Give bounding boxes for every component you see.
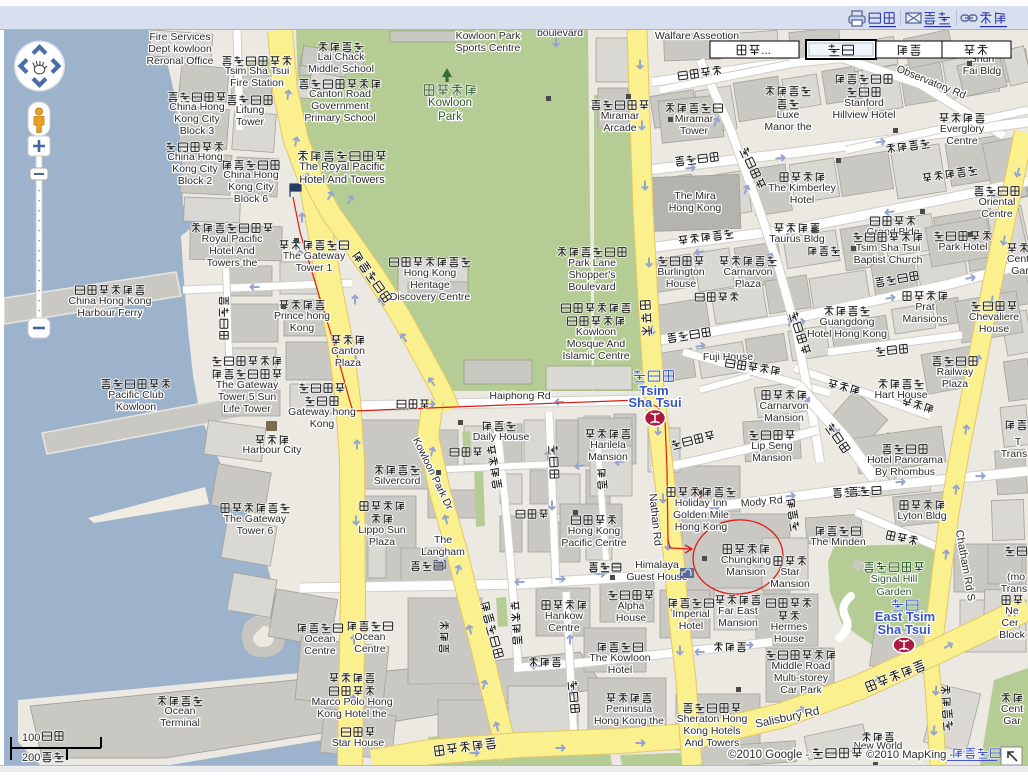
svg-text:Daily House: Daily House xyxy=(473,431,530,443)
svg-text:Guest House: Guest House xyxy=(626,571,687,583)
svg-text:Lai Chack: Lai Chack xyxy=(318,51,365,63)
svg-text:Plaza: Plaza xyxy=(369,536,395,548)
svg-text:Star: Star xyxy=(780,566,800,578)
svg-text:Fire Station: Fire Station xyxy=(230,77,284,89)
svg-text:Signal Hill: Signal Hill xyxy=(871,573,918,585)
svg-text:Royal Pacific: Royal Pacific xyxy=(202,233,263,245)
svg-text:Plaza: Plaza xyxy=(735,278,761,290)
svg-text:Block 6: Block 6 xyxy=(234,193,269,205)
svg-text:Block 2: Block 2 xyxy=(178,175,213,187)
svg-text:The Mira: The Mira xyxy=(674,190,716,202)
svg-text:Alpha: Alpha xyxy=(618,600,645,612)
svg-text:Mansion: Mansion xyxy=(752,452,792,464)
svg-text:Garden: Garden xyxy=(876,586,911,598)
svg-text:Ocean: Ocean xyxy=(305,633,336,645)
svg-text:Kowloon Park: Kowloon Park xyxy=(456,30,522,42)
svg-text:Centre: Centre xyxy=(354,643,386,655)
svg-text:Sports Centre: Sports Centre xyxy=(456,42,521,54)
svg-text:Centre: Centre xyxy=(548,622,580,634)
svg-text:Centre: Centre xyxy=(946,135,978,147)
svg-text:Tsim Sha Tsui: Tsim Sha Tsui xyxy=(225,65,290,77)
svg-text:Kong: Kong xyxy=(310,418,335,430)
svg-text:Hermes: Hermes xyxy=(771,621,808,633)
svg-text:Hong Kong: Hong Kong xyxy=(669,202,722,214)
svg-text:Towers the: Towers the xyxy=(207,257,258,269)
svg-text:T: T xyxy=(1015,436,1022,448)
svg-text:Gateway hong: Gateway hong xyxy=(288,406,356,418)
svg-text:Reronal Office: Reronal Office xyxy=(147,55,214,67)
svg-text:The Gateway: The Gateway xyxy=(216,379,279,391)
svg-text:Golden Mile: Golden Mile xyxy=(673,509,729,521)
svg-text:Ne: Ne xyxy=(1005,605,1019,617)
svg-text:Park: Park xyxy=(438,111,462,123)
svg-text:Guangdong: Guangdong xyxy=(820,316,875,328)
svg-text:©2010 MapKing -: ©2010 MapKing - xyxy=(866,749,954,761)
svg-text:The: The xyxy=(434,534,452,546)
svg-text:200: 200 xyxy=(22,752,40,764)
svg-text:By Rhombus: By Rhombus xyxy=(875,466,935,478)
svg-text:Sha Tsui: Sha Tsui xyxy=(877,622,930,637)
svg-text:Islamic Centre: Islamic Centre xyxy=(562,350,629,362)
svg-text:Cent: Cent xyxy=(1007,253,1028,265)
svg-text:Hotel: Hotel xyxy=(608,664,633,676)
svg-text:Lifung: Lifung xyxy=(236,104,265,116)
svg-text:Hotel: Hotel xyxy=(790,194,815,206)
svg-text:Harbour Ferry: Harbour Ferry xyxy=(77,307,143,319)
svg-text:China Hong: China Hong xyxy=(169,101,225,113)
svg-text:Baptist Church: Baptist Church xyxy=(854,254,923,266)
svg-text:The Gateway: The Gateway xyxy=(283,250,346,262)
svg-text:Ocean: Ocean xyxy=(165,705,196,717)
svg-text:Lip Seng: Lip Seng xyxy=(751,440,793,452)
svg-text:Fai Bldg: Fai Bldg xyxy=(963,65,1002,77)
svg-text:The Royal Pacific: The Royal Pacific xyxy=(299,161,385,173)
svg-text:Canton Road: Canton Road xyxy=(309,88,371,100)
svg-text:Lyton Bldg: Lyton Bldg xyxy=(897,510,946,522)
svg-text:Middle Road: Middle Road xyxy=(772,660,831,672)
svg-text:Harbour City: Harbour City xyxy=(243,444,303,456)
svg-text:Gar: Gar xyxy=(1003,715,1021,727)
svg-text:Government: Government xyxy=(311,100,369,112)
svg-text:Hillview Hotel: Hillview Hotel xyxy=(832,109,895,121)
svg-text:Tower 5 Sun: Tower 5 Sun xyxy=(218,391,277,403)
svg-text:Shopper's: Shopper's xyxy=(569,269,616,281)
svg-text:Mansion: Mansion xyxy=(764,412,804,424)
svg-text:Plaza: Plaza xyxy=(942,378,968,390)
svg-text:Block: Block xyxy=(999,629,1025,641)
svg-text:Harilela: Harilela xyxy=(590,439,626,451)
svg-text:Lippo Sun: Lippo Sun xyxy=(358,524,405,536)
svg-text:Stanford: Stanford xyxy=(844,97,884,109)
svg-text:Tower 6: Tower 6 xyxy=(237,525,274,537)
svg-text:100: 100 xyxy=(22,732,40,744)
svg-text:Langham: Langham xyxy=(421,546,465,558)
svg-text:Dept kowloon: Dept kowloon xyxy=(148,43,212,55)
svg-text:Pacific Centre: Pacific Centre xyxy=(561,537,627,549)
svg-text:Park Lane: Park Lane xyxy=(568,257,616,269)
svg-text:Kowloon: Kowloon xyxy=(428,97,472,109)
svg-text:The Kowloon: The Kowloon xyxy=(589,652,650,664)
svg-text:The Kimberley: The Kimberley xyxy=(768,182,836,194)
svg-text:Trans: Trans xyxy=(1001,448,1027,460)
svg-text:(mo: (mo xyxy=(1007,571,1025,583)
svg-text:Heritage: Heritage xyxy=(410,279,450,291)
svg-text:Hong Kong: Hong Kong xyxy=(675,521,728,533)
svg-text:Taurus Bldg: Taurus Bldg xyxy=(769,233,825,245)
svg-text:Carnarvon: Carnarvon xyxy=(759,400,808,412)
svg-text:Himalaya: Himalaya xyxy=(635,559,679,571)
svg-text:And Towers: And Towers xyxy=(685,737,740,749)
svg-text:Everglory: Everglory xyxy=(940,123,985,135)
svg-text:Ocean: Ocean xyxy=(355,631,386,643)
svg-text:Kong Hotels: Kong Hotels xyxy=(683,725,740,737)
svg-text:...: ... xyxy=(761,43,771,57)
svg-text:The Minden: The Minden xyxy=(810,536,866,548)
svg-text:©2010 Google -: ©2010 Google - xyxy=(728,749,810,761)
svg-text:Hotel And Towers: Hotel And Towers xyxy=(299,174,385,186)
svg-text:Kong: Kong xyxy=(290,322,315,334)
svg-text:Mansions: Mansions xyxy=(903,313,948,325)
svg-text:Miramar: Miramar xyxy=(675,113,714,125)
svg-text:Railway: Railway xyxy=(937,366,975,378)
svg-text:Trans: Trans xyxy=(1001,583,1027,595)
svg-text:Hotel Panorama: Hotel Panorama xyxy=(867,454,943,466)
svg-text:Cent: Cent xyxy=(1001,703,1023,715)
svg-text:Sha Tsui: Sha Tsui xyxy=(628,395,681,410)
svg-text:Kong City: Kong City xyxy=(228,181,274,193)
svg-text:Boulevard: Boulevard xyxy=(568,281,615,293)
svg-text:China Hong Kong: China Hong Kong xyxy=(69,295,152,307)
svg-text:Kowloon: Kowloon xyxy=(116,401,156,413)
svg-text:Chevaliere: Chevaliere xyxy=(969,311,1019,323)
svg-text:Manor the: Manor the xyxy=(764,121,811,133)
svg-text:Sheraton Hong: Sheraton Hong xyxy=(677,713,748,725)
svg-text:Hong Kong the: Hong Kong the xyxy=(594,715,664,727)
svg-text:Discovery Centre: Discovery Centre xyxy=(390,291,471,303)
svg-text:Park Hotel: Park Hotel xyxy=(938,241,987,253)
svg-text:The Gateway: The Gateway xyxy=(224,513,287,525)
svg-text:Burlington: Burlington xyxy=(657,266,704,278)
svg-text:Mansion: Mansion xyxy=(770,578,810,590)
svg-text:House: House xyxy=(774,633,805,645)
svg-text:Hong Kong: Hong Kong xyxy=(568,525,621,537)
svg-text:Chungking: Chungking xyxy=(721,554,771,566)
svg-text:Kong City: Kong City xyxy=(174,113,220,125)
svg-text:Haiphong Rd: Haiphong Rd xyxy=(489,390,550,402)
svg-text:Tsim Sha Tsui: Tsim Sha Tsui xyxy=(856,242,921,254)
svg-text:Kowloon: Kowloon xyxy=(576,326,616,338)
svg-text:Prat: Prat xyxy=(915,301,934,313)
svg-text:Fire Services: Fire Services xyxy=(149,31,210,43)
svg-text:Walfare Asseotion: Walfare Asseotion xyxy=(655,30,739,42)
svg-text:Hotel Hong Kong: Hotel Hong Kong xyxy=(807,328,887,340)
svg-text:Terminal: Terminal xyxy=(160,717,200,729)
svg-text:Mansion: Mansion xyxy=(588,451,628,463)
svg-text:Carnarvon: Carnarvon xyxy=(723,266,772,278)
svg-text:Hart House: Hart House xyxy=(874,389,927,401)
svg-text:Tower: Tower xyxy=(680,125,709,137)
svg-text:Far East: Far East xyxy=(718,605,758,617)
svg-text:Star House: Star House xyxy=(332,737,385,749)
svg-text:Canton: Canton xyxy=(331,345,365,357)
svg-text:Plaza: Plaza xyxy=(335,357,361,369)
svg-text:Block 3: Block 3 xyxy=(180,125,215,137)
svg-text:Arcade: Arcade xyxy=(603,122,636,134)
svg-text:Kong City: Kong City xyxy=(172,163,218,175)
svg-text:Holiday Inn: Holiday Inn xyxy=(675,497,728,509)
svg-text:Silvercord: Silvercord xyxy=(374,475,421,487)
svg-text:Car Park: Car Park xyxy=(780,684,822,696)
svg-text:Prince hong: Prince hong xyxy=(274,310,330,322)
svg-text:Mansion: Mansion xyxy=(726,566,766,578)
svg-text:Imperial: Imperial xyxy=(672,608,709,620)
svg-text:Tower 1: Tower 1 xyxy=(296,262,333,274)
svg-text:Centre: Centre xyxy=(304,645,336,657)
svg-text:Pacific Club: Pacific Club xyxy=(108,389,164,401)
svg-text:Marco Polo Hong: Marco Polo Hong xyxy=(311,696,392,708)
svg-text:China Hong: China Hong xyxy=(167,151,223,163)
svg-text:Hong Kong: Hong Kong xyxy=(404,267,457,279)
svg-text:Hotel And: Hotel And xyxy=(209,245,255,257)
svg-text:Centre: Centre xyxy=(981,208,1013,220)
svg-text:Multi-storey: Multi-storey xyxy=(774,672,829,684)
svg-text:Primary School: Primary School xyxy=(304,112,375,124)
svg-text:Miramar: Miramar xyxy=(601,110,640,122)
svg-text:China Hong: China Hong xyxy=(223,169,279,181)
svg-text:Peninsula: Peninsula xyxy=(606,703,652,715)
svg-text:House: House xyxy=(616,612,647,624)
svg-text:Oriental: Oriental xyxy=(979,196,1016,208)
svg-text:Tower: Tower xyxy=(236,116,265,128)
svg-text:House: House xyxy=(666,278,697,290)
svg-text:Mansion: Mansion xyxy=(718,617,758,629)
svg-text:Middle School: Middle School xyxy=(308,63,374,75)
svg-text:Life Tower: Life Tower xyxy=(223,403,271,415)
svg-text:House: House xyxy=(979,323,1010,335)
svg-text:Hotel: Hotel xyxy=(679,620,704,632)
svg-text:Gar: Gar xyxy=(1011,265,1028,277)
svg-text:Hankow: Hankow xyxy=(545,610,583,622)
svg-text:Luxe: Luxe xyxy=(777,109,800,121)
svg-text:Mosque And: Mosque And xyxy=(567,338,626,350)
svg-text:Cer: Cer xyxy=(1002,617,1019,629)
svg-text:Kong Hotel the: Kong Hotel the xyxy=(317,708,387,720)
